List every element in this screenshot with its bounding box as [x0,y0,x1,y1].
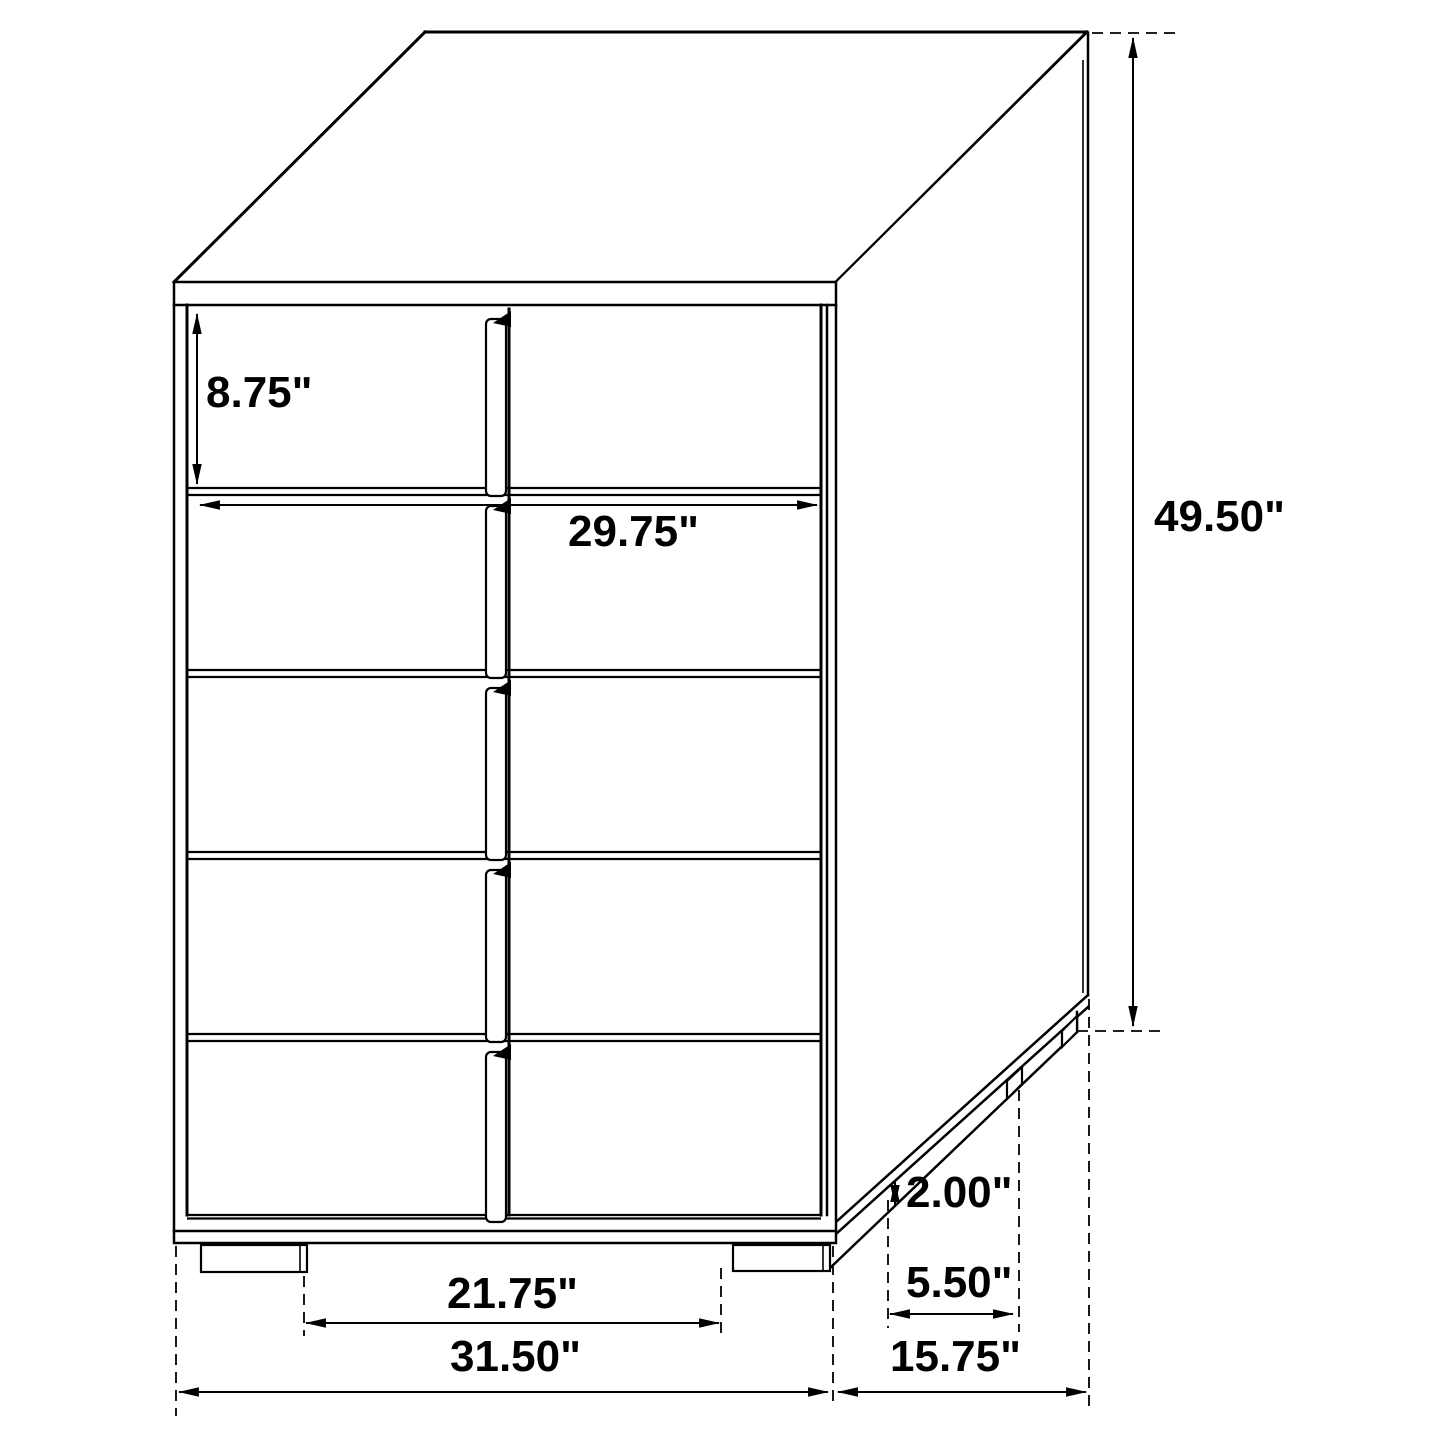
front-leg-right [733,1245,830,1271]
chest-dimension-drawing: 8.75" 29.75" 49.50" 2.00" 5.50" 21.75" 3… [0,0,1445,1445]
dimension-side-leg-spacing: 5.50" [890,1258,1013,1314]
front-leg-spacing-label: 21.75" [447,1269,578,1318]
drawer-width-label: 29.75" [568,507,699,556]
overall-depth-label: 15.75" [890,1332,1021,1381]
dimension-diagram-canvas: 8.75" 29.75" 49.50" 2.00" 5.50" 21.75" 3… [0,0,1445,1445]
drawer-handle [486,870,506,1042]
overall-height-label: 49.50" [1154,492,1285,541]
drawer-handle [486,688,506,860]
front-leg-left [201,1245,307,1272]
drawer-height-label: 8.75" [206,368,313,417]
side-leg-spacing-label: 5.50" [906,1258,1013,1307]
drawer-handle [486,319,506,496]
dimension-base-height: 2.00" [895,1168,1013,1217]
base-height-label: 2.00" [906,1168,1013,1217]
overall-width-label: 31.50" [450,1332,581,1381]
drawer-handle [486,1052,506,1222]
cabinet-front-face [174,282,836,1243]
drawer-handle [486,506,506,678]
